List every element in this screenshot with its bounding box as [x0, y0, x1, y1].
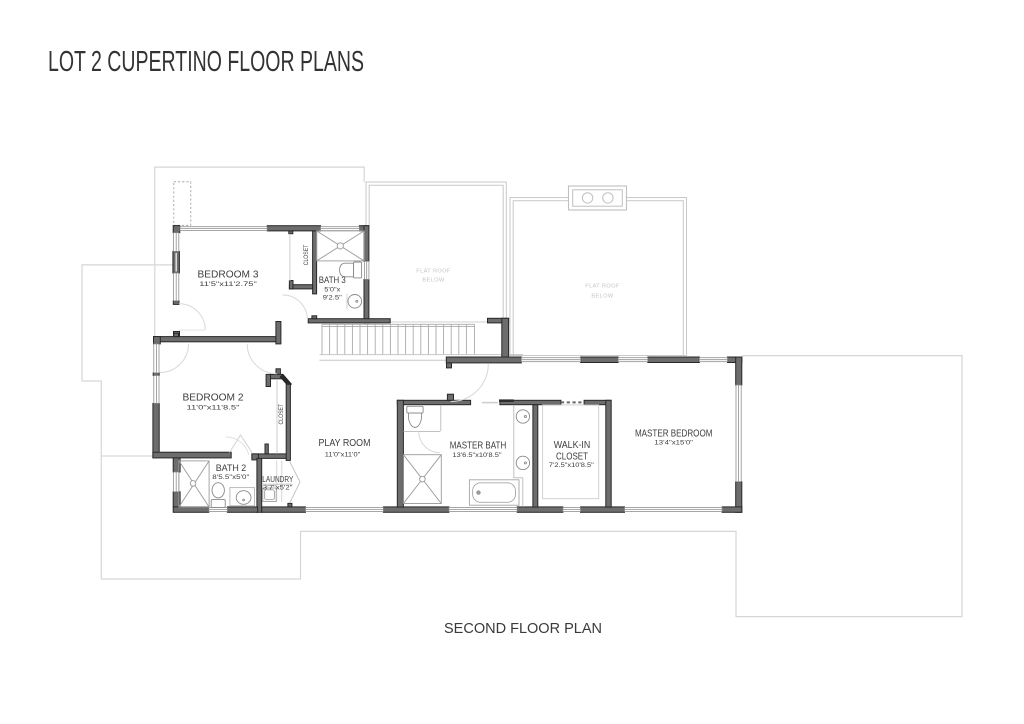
svg-text:CLOSET: CLOSET [279, 404, 285, 425]
svg-text:WALK-IN: WALK-IN [554, 440, 591, 451]
svg-text:11'0"x11'8.5": 11'0"x11'8.5" [187, 405, 241, 412]
svg-text:13'4"x15'0": 13'4"x15'0" [654, 439, 693, 446]
svg-text:BATH 2: BATH 2 [216, 463, 247, 474]
svg-text:BATH 3: BATH 3 [319, 275, 346, 286]
svg-text:7'2.5"x10'8.5": 7'2.5"x10'8.5" [549, 462, 595, 469]
svg-text:11'0"x11'0": 11'0"x11'0" [325, 452, 361, 459]
svg-text:FLAT ROOF: FLAT ROOF [585, 284, 620, 290]
svg-text:BEDROOM 2: BEDROOM 2 [183, 393, 244, 404]
svg-text:5'0"x: 5'0"x [324, 286, 341, 293]
svg-text:BEDROOM 3: BEDROOM 3 [198, 270, 259, 281]
svg-text:9'2.5": 9'2.5" [323, 294, 343, 301]
svg-text:8'5.5"x5'0": 8'5.5"x5'0" [212, 474, 250, 481]
svg-text:BELOW: BELOW [422, 278, 445, 284]
svg-text:MASTER BEDROOM: MASTER BEDROOM [635, 429, 713, 440]
svg-text:FLAT ROOF: FLAT ROOF [416, 269, 451, 275]
svg-text:PLAY ROOM: PLAY ROOM [319, 438, 371, 449]
svg-text:MASTER BATH: MASTER BATH [450, 441, 507, 452]
svg-text:LAUNDRY: LAUNDRY [262, 475, 293, 484]
svg-text:11'5"x11'2.75": 11'5"x11'2.75" [199, 281, 257, 288]
svg-text:3'7"x5'2": 3'7"x5'2" [263, 484, 293, 491]
svg-text:SECOND FLOOR PLAN: SECOND FLOOR PLAN [444, 621, 602, 637]
svg-text:BELOW: BELOW [591, 294, 614, 300]
svg-text:CLOSET: CLOSET [304, 244, 310, 265]
svg-text:13'6.5"x10'8.5": 13'6.5"x10'8.5" [453, 452, 503, 459]
svg-text:LOT 2 CUPERTINO FLOOR PLANS: LOT 2 CUPERTINO FLOOR PLANS [48, 46, 364, 78]
svg-text:CLOSET: CLOSET [556, 451, 588, 462]
